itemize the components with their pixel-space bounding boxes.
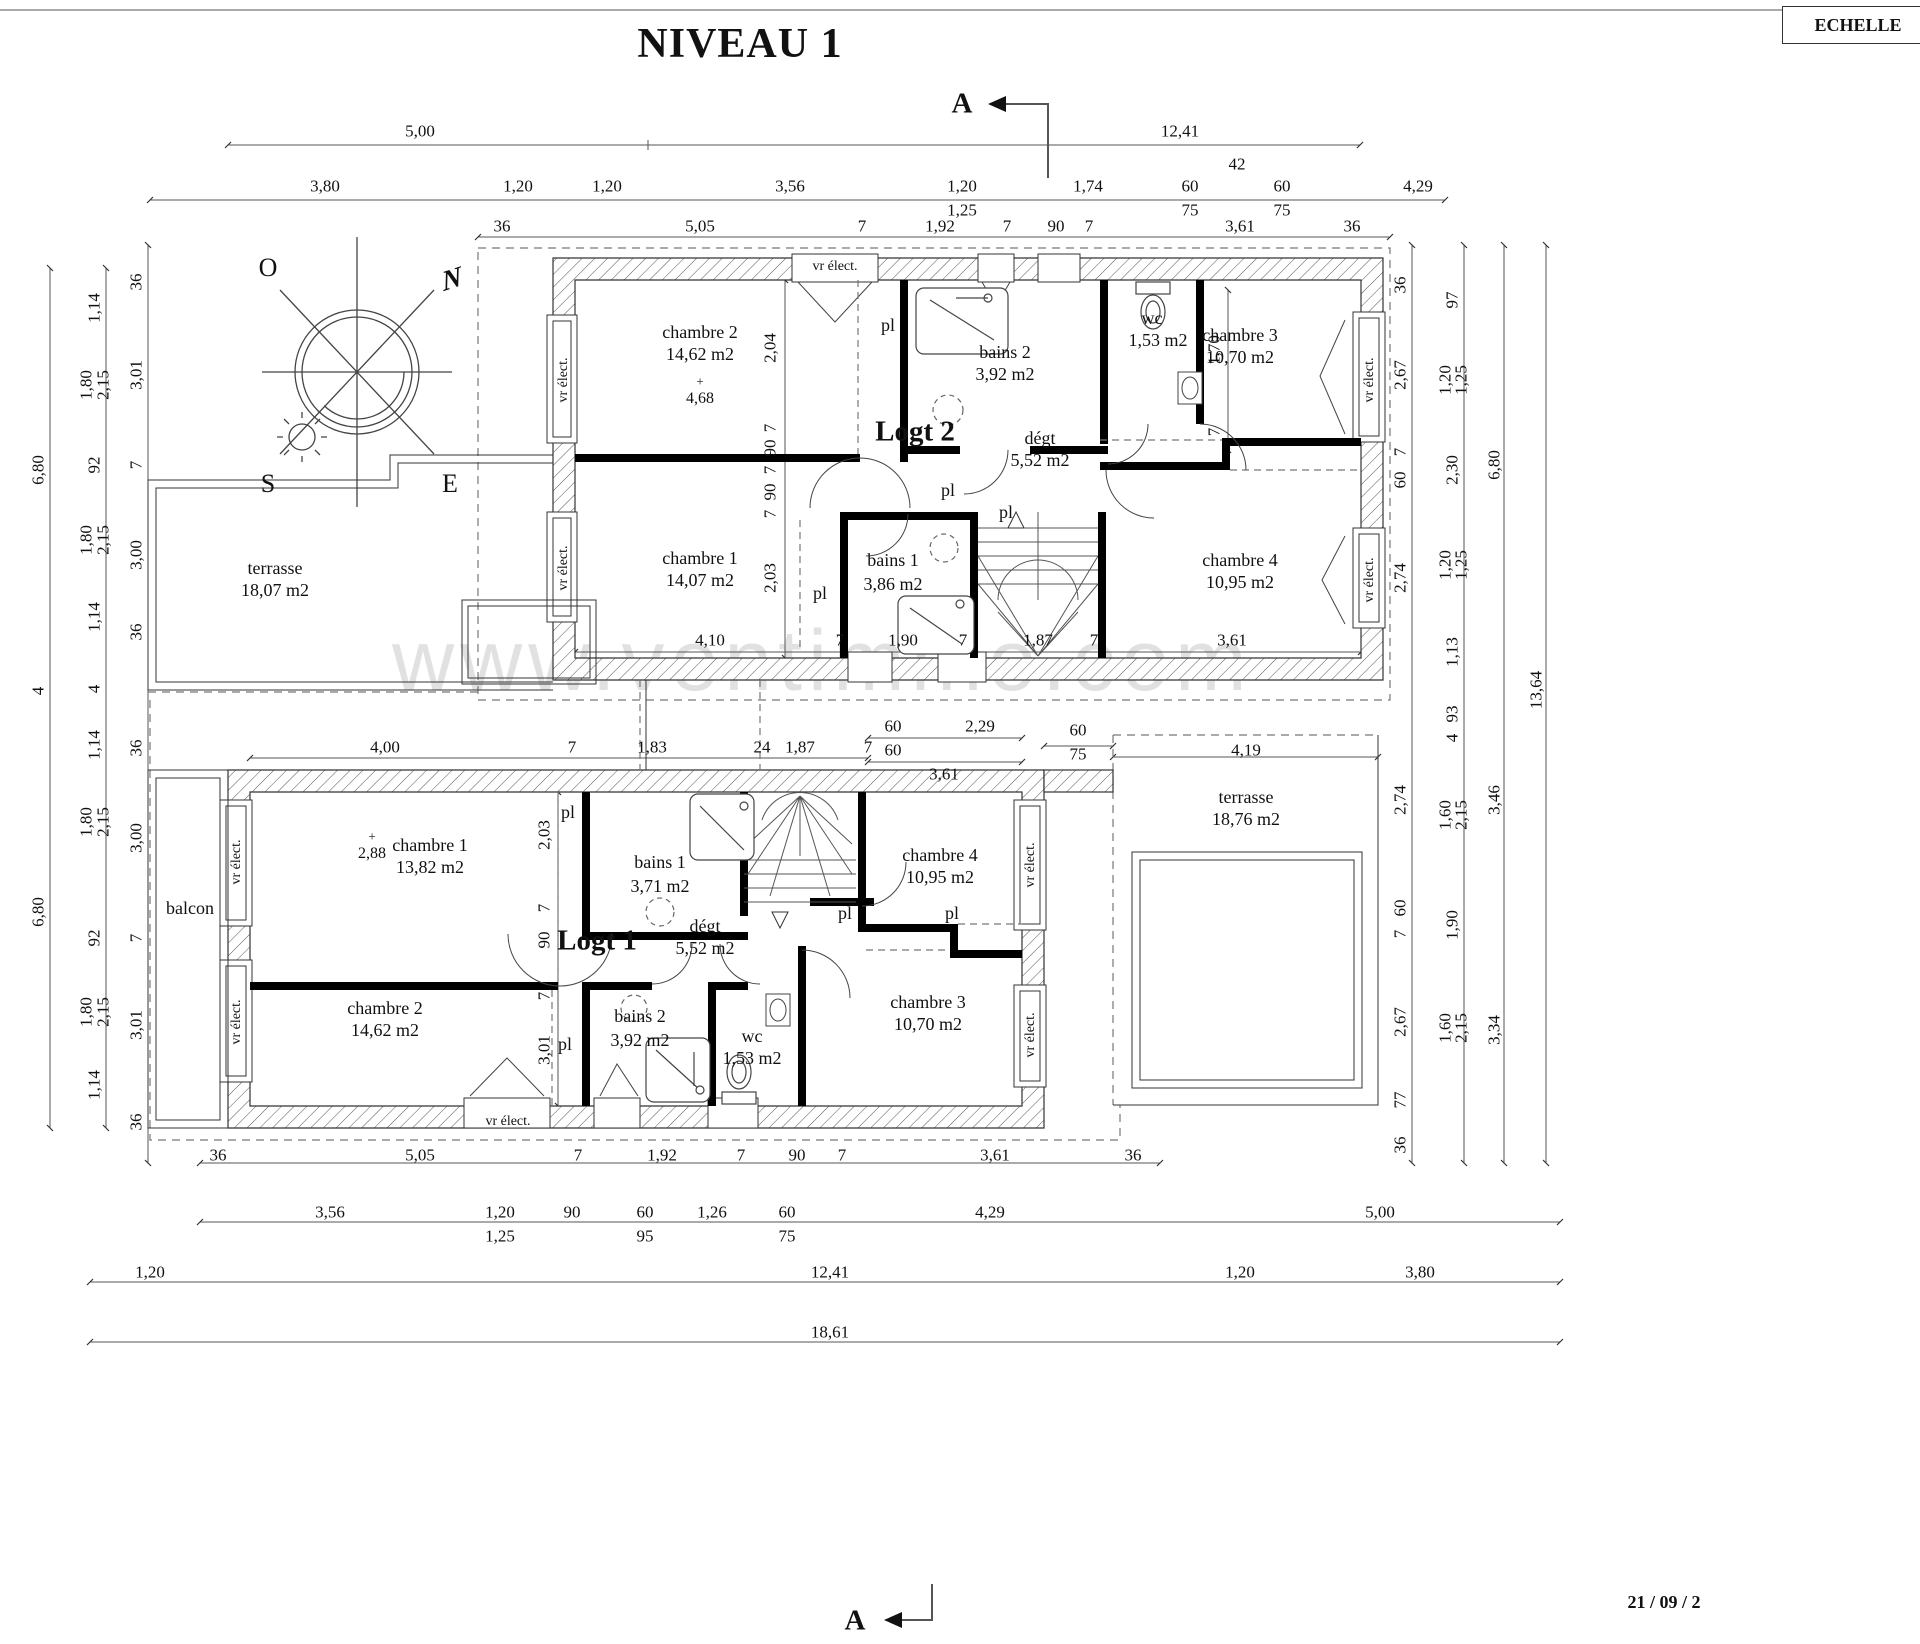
dim-left: 36 [128,740,145,757]
room-name: terrasse [1219,788,1274,806]
dim-interior: 7 [762,424,779,433]
room-area: 10,95 m2 [906,868,974,886]
sun-icon [289,424,315,450]
dim-right: 13,64 [1528,671,1545,709]
placard-label: pl [945,904,959,922]
room-area: 14,62 m2 [666,345,734,363]
dim-left: 6,80 [30,897,47,927]
dim-right: 2,74 [1392,785,1409,815]
dim-left: 6,80 [30,455,47,485]
room-area: 18,76 m2 [1212,810,1280,828]
dim-right: 60 [1392,900,1409,917]
dim-interior: 2,03 [536,820,553,850]
room-name: bains 1 [634,853,686,871]
dim-interior: 7 [836,632,845,649]
room-area: 3,86 m2 [863,575,922,593]
dim-interior: 90 [762,484,779,501]
dim-interior: 7 [568,739,577,756]
dim-bottom: 1,26 [697,1204,727,1221]
dim-left: 36 [128,274,145,291]
dim-left: 4 [86,685,103,694]
plan-linework [0,0,1920,1644]
room-name: chambre 4 [1202,551,1277,569]
dim-top: 75 [1274,202,1291,219]
dim-interior: 4,19 [1231,742,1261,759]
dim-interior: 2,04 [762,333,779,363]
dim-interior: 1,83 [637,739,667,756]
dim-bottom: 95 [637,1228,654,1245]
dim-interior: 60 [1070,722,1087,739]
dim-top: 4,29 [1403,178,1433,195]
dim-top: 5,05 [685,218,715,235]
dim-left: 4 [30,687,47,696]
dim-bottom: 90 [789,1147,806,1164]
dim-interior: 7 [1090,632,1099,649]
dim-top: 1,74 [1073,178,1103,195]
dim-left: 3,00 [128,540,145,570]
dim-left: 1,80 [78,807,95,837]
shower-icons [646,288,1008,1102]
room-name: chambre 1 [392,836,467,854]
dim-interior: 7 [762,510,779,519]
dim-interior: 3,61 [1217,632,1247,649]
room-name: dégt [690,917,721,935]
room-area: 1,53 m2 [722,1049,781,1067]
placard-label: pl [838,904,852,922]
dim-left: 1,14 [86,602,103,632]
dim-interior: 7 [864,739,873,756]
dim-bottom: 5,00 [1365,1204,1395,1221]
room-area: 3,92 m2 [610,1031,669,1049]
dim-right: 1,90 [1444,910,1461,940]
dim-bottom: 4,29 [975,1204,1005,1221]
dim-bottom: 7 [737,1147,746,1164]
room-area: 14,62 m2 [351,1021,419,1039]
room-area: 1,53 m2 [1128,331,1187,349]
dim-right: 1,25 [1453,550,1470,580]
dim-top: 1,20 [503,178,533,195]
dim-bottom: 3,80 [1405,1264,1435,1281]
dim-bottom: 1,92 [647,1147,677,1164]
level-plus: + [368,830,375,843]
dim-top: 60 [1274,178,1291,195]
dim-top: 1,92 [925,218,955,235]
dim-right: 60 [1392,472,1409,489]
dim-interior: 90 [762,440,779,457]
placard-label: pl [813,584,827,602]
section-marker-top: A [952,90,973,119]
dim-top: 3,56 [775,178,805,195]
dim-right: 6,80 [1486,450,1503,480]
room-name: chambre 1 [662,549,737,567]
room-area: 13,82 m2 [396,858,464,876]
dim-right: 2,15 [1453,800,1470,830]
compass-east: E [442,471,458,497]
room-name: bains 2 [614,1007,666,1025]
room-name: bains 2 [979,343,1031,361]
dim-bottom: 18,61 [811,1324,849,1341]
dim-right: 2,15 [1453,1013,1470,1043]
dim-interior: 7 [536,992,553,1001]
dim-interior: 1,90 [888,632,918,649]
dim-left: 2,15 [95,997,112,1027]
dim-right: 1,13 [1444,637,1461,667]
compass-west: O [259,255,278,281]
room-area: 10,95 m2 [1206,573,1274,591]
dim-bottom: 1,20 [1225,1264,1255,1281]
dim-bottom: 1,20 [135,1264,165,1281]
room-area: 3,92 m2 [975,365,1034,383]
dim-left: 36 [128,624,145,641]
dim-top: 75 [1182,202,1199,219]
dim-right: 1,25 [1453,365,1470,395]
shutter-label: vr élect. [557,545,571,590]
dim-right: 97 [1444,292,1461,309]
dim-left: 92 [86,930,103,947]
dim-interior: 4,00 [370,739,400,756]
dim-left: 1,14 [86,293,103,323]
dim-bottom: 12,41 [811,1264,849,1281]
dim-bottom: 7 [838,1147,847,1164]
floorplan-canvas: NIVEAU 1 ECHELLE www.ventimmo.com 21 / 0… [0,0,1920,1644]
dim-right: 93 [1444,706,1461,723]
dim-right: 7 [1392,930,1409,939]
dim-bottom: 1,20 [485,1204,515,1221]
dim-interior: 90 [536,932,553,949]
shutter-label: vr élect. [230,839,244,884]
placard-label: pl [561,803,575,821]
dim-right: 2,67 [1392,1007,1409,1037]
room-area: 3,71 m2 [630,877,689,895]
room-area: 5,52 m2 [675,939,734,957]
dim-top: 7 [1085,218,1094,235]
dim-top: 1,20 [947,178,977,195]
placard-label: pl [941,481,955,499]
dim-top: 5,00 [405,123,435,140]
dim-bottom: 5,05 [405,1147,435,1164]
room-name: dégt [1025,429,1056,447]
dim-top: 7 [1003,218,1012,235]
dim-right: 2,74 [1392,563,1409,593]
dim-interior: 7 [536,904,553,913]
dim-left: 1,80 [78,525,95,555]
dim-left: 1,80 [78,370,95,400]
dim-left: 3,01 [128,360,145,390]
dim-bottom: 36 [210,1147,227,1164]
dim-top: 3,61 [1225,218,1255,235]
dim-right: 77 [1392,1092,1409,1109]
dim-left: 3,00 [128,823,145,853]
dim-right: 36 [1392,277,1409,294]
dim-interior: 4,10 [695,632,725,649]
placard-label: pl [558,1035,572,1053]
door-swings [508,424,1246,998]
dim-top: 60 [1182,178,1199,195]
dim-bottom: 1,25 [485,1228,515,1245]
room-area: 10,70 m2 [894,1015,962,1033]
washbasin-icons [766,372,1202,1026]
compass-icon [262,237,452,507]
dim-interior: 24 [754,739,771,756]
room-name: chambre 2 [662,323,737,341]
dim-bottom: 60 [637,1204,654,1221]
shutter-label: vr élect. [1024,1012,1038,1057]
dim-top: 3,80 [310,178,340,195]
dim-bottom: 3,61 [980,1147,1010,1164]
dim-interior: 60 [885,742,902,759]
dim-interior: 2,03 [762,563,779,593]
compass-south: S [261,471,275,497]
dim-left: 36 [128,1114,145,1131]
dim-left: 92 [86,457,103,474]
dim-left: 2,15 [95,525,112,555]
level-plus: + [696,375,703,388]
room-name: chambre 3 [890,993,965,1011]
dim-top: 42 [1229,156,1246,173]
dim-top: 1,20 [592,178,622,195]
dim-left: 1,14 [86,730,103,760]
dim-interior: 1,87 [785,739,815,756]
dim-bottom: 7 [574,1147,583,1164]
room-name: chambre 2 [347,999,422,1017]
room-name: bains 1 [867,551,919,569]
dim-top: 90 [1048,218,1065,235]
logement-label: Logt 2 [875,418,955,447]
placard-label: pl [881,316,895,334]
room-name: balcon [166,899,214,917]
placard-dashed [552,280,1361,1106]
dim-interior: 7 [1206,428,1223,437]
level-value: 4,68 [686,391,714,407]
dim-interior: 7 [959,632,968,649]
room-area: 10,70 m2 [1206,348,1274,366]
room-name: chambre 4 [902,846,977,864]
room-area: 14,07 m2 [666,571,734,589]
dim-bottom: 90 [564,1204,581,1221]
dim-interior: 7 [762,466,779,475]
dim-right: 36 [1392,1137,1409,1154]
dim-top: 7 [858,218,867,235]
room-name: wc [742,1027,763,1045]
dim-left: 2,15 [95,370,112,400]
room-name: chambre 3 [1202,326,1277,344]
dim-left: 2,15 [95,807,112,837]
dim-left: 1,80 [78,997,95,1027]
dim-right: 3,46 [1486,785,1503,815]
logement-label: Logt 1 [557,927,637,956]
shutter-label: vr élect. [1363,557,1377,602]
room-name: wc [1142,309,1163,327]
shutter-label: vr élect. [1363,357,1377,402]
dim-interior: 1,87 [1023,632,1053,649]
shutter-label: vr élect. [557,357,571,402]
dim-top: 36 [1344,218,1361,235]
shutter-label: vr élect. [230,999,244,1044]
dim-bottom: 3,56 [315,1204,345,1221]
dim-interior: 3,61 [929,766,959,783]
dim-right: 4 [1444,734,1461,743]
level-value: 2,88 [358,846,386,862]
dim-left: 1,14 [86,1070,103,1100]
section-marker-bottom: A [845,1607,866,1636]
dim-bottom: 36 [1125,1147,1142,1164]
dim-right: 7 [1392,448,1409,457]
room-name: terrasse [248,559,303,577]
dim-left: 7 [128,934,145,943]
dim-interior: 3,01 [536,1035,553,1065]
dim-interior: 60 [885,718,902,735]
compass-north: N [440,263,463,297]
dim-top: 12,41 [1161,123,1199,140]
shutter-label: vr élect. [485,1115,530,1129]
dim-right: 3,34 [1486,1015,1503,1045]
room-area: 5,52 m2 [1010,451,1069,469]
dim-bottom: 60 [779,1204,796,1221]
dim-interior: 75 [1070,746,1087,763]
dim-right: 2,30 [1444,455,1461,485]
dim-right: 2,67 [1392,360,1409,390]
shutter-label: vr élect. [1024,842,1038,887]
dim-top: 36 [494,218,511,235]
dim-left: 7 [128,461,145,470]
room-area: 18,07 m2 [241,581,309,599]
placard-label: pl [999,503,1013,521]
shutter-label: vr élect. [812,260,857,274]
dim-interior: 2,29 [965,718,995,735]
dim-bottom: 75 [779,1228,796,1245]
dim-left: 3,01 [128,1010,145,1040]
